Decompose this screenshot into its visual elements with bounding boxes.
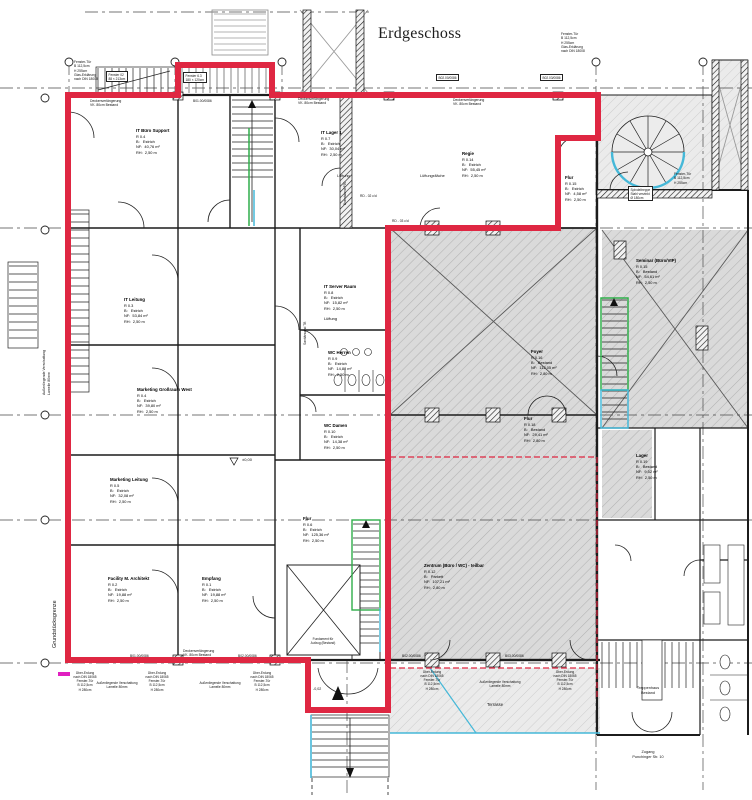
room-label: Marketing LeitungR 0.5 B: Estrich NF: 32… — [110, 477, 148, 504]
code-bottom-2: B02.00/0086 — [238, 654, 257, 658]
room-label: IT LeitungR 0.3 B: Estrich NF: 53,84 m² … — [124, 297, 148, 324]
room-label: IT Lager 1R 0.7 B: Estrich NF: 30,04 m² … — [321, 130, 345, 157]
room-label: Facility M. ArchitektR 0.2 B: Estrich NF… — [108, 576, 149, 603]
room-label: FlurR 0.15 B: Estrich NF: 4,58 m² RH: 2,… — [565, 175, 587, 202]
room-label: FlurR 0.6 B: Estrich NF: 125,36 m² RH: 2… — [303, 516, 329, 543]
room-label: EmpfangR 0.1 B: Estrich NF: 19,88 m² RH:… — [202, 576, 226, 603]
window-annotation-2: Über-Erdung nach DIN 18065 Fenster-Tür B… — [145, 671, 168, 692]
page-title: Erdgeschoss — [378, 25, 461, 43]
code-bottom-4: B03.00/0086 — [505, 654, 524, 658]
room-label: FlurR 0.18 B: Bestand NF: 29,41 m² RH: 2… — [524, 416, 548, 443]
deckenverlaengerung-4: Deckenverlängerung VK. 80cm Bestand — [183, 649, 214, 658]
plan-linework — [0, 0, 752, 800]
room-label: Seminar (Büro/VIP)R 0.15 B: Bestand NF: … — [636, 258, 676, 285]
room-label: WC HerrenR 0.9 B: Estrich NF: 14,88 m² R… — [328, 350, 352, 377]
grundstuecksgrenze-label: Grundstücksgrenze — [52, 600, 59, 648]
room-label: IT Server RaumR 0.8 B: Estrich NF: 15,82… — [324, 284, 356, 322]
terrasse-label: Terrasse — [487, 702, 503, 707]
fenstertuer-topright: Fenster-Tür B 112,5cm H 255cm Glas-Erklä… — [561, 32, 585, 53]
level-zero-label: ±0,00 — [242, 457, 252, 462]
fenstertuer-right: Fenster-Tür B 112,5cm H 255cm — [674, 172, 691, 185]
rd-code-2: RD - 03 c/d — [392, 219, 409, 223]
spindeltreppe-chip: Spindeltreppe Stahl verzinkt Ø 180cm — [628, 186, 653, 201]
fenster-chip-2: Fenster 6.3 180 × 120cm — [183, 72, 207, 83]
treppenhaus-label: Treppenhaus Bestand — [637, 686, 659, 696]
verschattung-bottom-2: Außenliegende Verschattung Lamelle 80mm — [200, 681, 241, 689]
room-label: RegieR 0.14 B: Estrich NF: 55,45 m² RH: … — [462, 151, 486, 178]
code-top-1: B01.00/0086 — [193, 99, 212, 103]
code-chip-2: B02.00/0086 — [436, 74, 459, 81]
code-chip-3: B02.03/0086 — [540, 74, 563, 81]
code-bottom-1: B01.00/0086 — [130, 654, 149, 658]
sanitaerwand-label: Sanitärwand TB — [303, 322, 307, 345]
window-annotation-5: Über-Erdung nach DIN 18065 Fenster-Tür B… — [553, 670, 576, 691]
verschattung-left-label: Außenliegende Verschattung Lamelle 80mm — [42, 350, 51, 395]
deckenverlaengerung-1: Deckenverlängerung VK. 80cm Bestand — [90, 99, 121, 108]
room-label: LagerR 0.19 B: Bestand NF: 9,52 m² RH: 2… — [636, 453, 658, 480]
level-minus-label: -0,02 — [313, 687, 321, 692]
room-label: IT Büro SupportR 0.4 B: Estrich NF: 40,7… — [136, 128, 169, 155]
floor-plan: Erdgeschoss IT Büro SupportR 0.4 B: Estr… — [0, 0, 752, 800]
window-annotation-4: Über-Erdung nach DIN 18065 Fenster-Tür B… — [420, 670, 443, 691]
fenstertuer-topleft: Fenster-Tür B 112,5cm H 255cm Glas-Erklä… — [74, 60, 98, 81]
room-label: Zentrum (Büro / WC) - teilbarR 0.12 B: P… — [424, 563, 484, 590]
room-label: FoyerR 0.16 B: Bestand NF: 112,05 m² RH:… — [531, 349, 557, 376]
window-annotation-1: Über-Erdung nach DIN 18065 Fenster-Tür B… — [73, 671, 96, 692]
deckenverlaengerung-3: Deckenverlängerung VK. 80cm Bestand — [453, 98, 484, 107]
existing-building-hatch — [390, 60, 748, 733]
aufzug-label: Fundament für Aufzug (Bestand) — [311, 637, 336, 645]
window-annotation-3: Über-Erdung nach DIN 18065 Fenster-Tür B… — [250, 671, 273, 692]
verschattung-bottom-3: Außenliegende Verschattung Lamelle 80mm — [480, 680, 521, 688]
deckenverlaengerung-2: Deckenverlängerung VK. 80cm Bestand — [298, 97, 329, 106]
room-label: Marketing Großraum WestR 0.4 B: Estrich … — [137, 387, 192, 414]
lueftung-label: Lüftung — [337, 174, 350, 179]
fenster-chip-1: Fenster 02 88 × 213cm — [106, 71, 128, 82]
room-label: WC DamenR 0.10 B: Estrich NF: 14,38 m² R… — [324, 423, 348, 450]
brandwand-label: Brandwand F90 — [343, 182, 347, 205]
lueftungsflaeche-label: Lüftungsfläche — [420, 174, 445, 179]
code-bottom-3: B02.00/0086 — [402, 654, 421, 658]
rd-code-1: RD - 02 c/d — [360, 194, 377, 198]
verschattung-bottom-1: Außenliegende Verschattung Lamelle 80mm — [97, 681, 138, 689]
zugang-label: Zugang Punchinger Str. 10 — [632, 750, 663, 760]
